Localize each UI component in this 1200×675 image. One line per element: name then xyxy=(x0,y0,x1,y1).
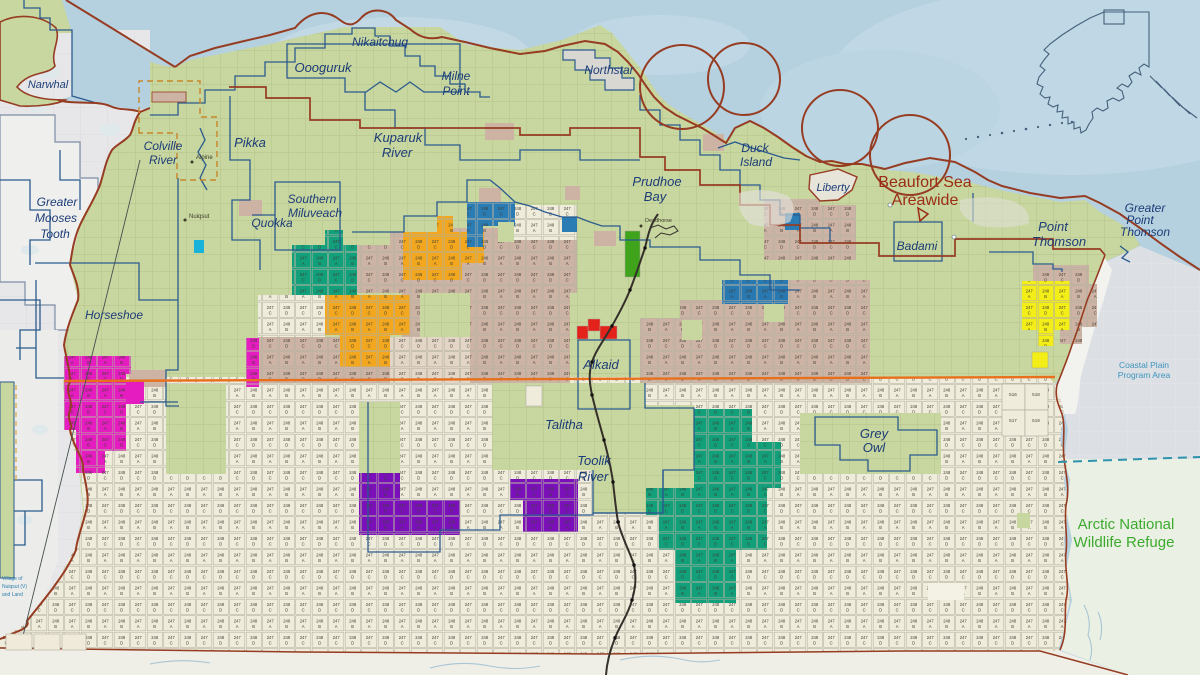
svg-text:River: River xyxy=(578,469,609,484)
svg-text:Alkaid: Alkaid xyxy=(582,357,619,372)
svg-text:519: 519 xyxy=(1032,418,1040,423)
svg-text:Southern: Southern xyxy=(288,192,337,206)
svg-text:Horseshoe: Horseshoe xyxy=(85,308,143,322)
svg-text:Duck: Duck xyxy=(741,141,769,155)
svg-text:Mooses: Mooses xyxy=(35,211,77,225)
svg-text:Beaufort Sea: Beaufort Sea xyxy=(878,174,972,191)
svg-text:Narwhal: Narwhal xyxy=(28,79,69,91)
svg-text:Nuiqsut: Nuiqsut xyxy=(189,214,210,220)
svg-text:Owl: Owl xyxy=(863,440,887,455)
svg-text:Liberty: Liberty xyxy=(816,182,851,194)
svg-text:Coastal Plain: Coastal Plain xyxy=(1119,360,1169,370)
svg-text:Prudhoe: Prudhoe xyxy=(632,174,681,189)
svg-text:and Land: and Land xyxy=(2,592,23,598)
svg-text:Northstar: Northstar xyxy=(584,63,634,77)
svg-text:Village of: Village of xyxy=(2,576,23,582)
svg-text:Alpine: Alpine xyxy=(196,155,213,161)
svg-text:Point: Point xyxy=(1038,219,1069,234)
svg-text:Wildlife Refuge: Wildlife Refuge xyxy=(1074,534,1175,551)
svg-text:Toolik: Toolik xyxy=(577,453,612,468)
svg-text:Arctic National: Arctic National xyxy=(1078,516,1175,533)
svg-text:Program Area: Program Area xyxy=(1118,370,1171,380)
svg-text:Deadhorse: Deadhorse xyxy=(645,218,672,224)
svg-text:River: River xyxy=(382,145,413,160)
svg-text:Nuiqsut (V): Nuiqsut (V) xyxy=(2,584,27,590)
svg-text:Oooguruk: Oooguruk xyxy=(294,60,353,75)
svg-text:Thomson: Thomson xyxy=(1120,225,1170,239)
svg-text:Colville: Colville xyxy=(144,139,183,153)
svg-text:516: 516 xyxy=(1009,392,1017,397)
svg-text:Greater: Greater xyxy=(37,195,79,209)
svg-text:Miluveach: Miluveach xyxy=(288,206,342,220)
svg-text:517: 517 xyxy=(1009,418,1017,423)
svg-text:Bay: Bay xyxy=(644,189,668,204)
svg-text:Nikaitchuq: Nikaitchuq xyxy=(352,35,408,49)
svg-text:Tooth: Tooth xyxy=(40,227,70,241)
svg-text:Island: Island xyxy=(740,155,772,169)
svg-text:River: River xyxy=(149,153,178,167)
svg-text:Grey: Grey xyxy=(860,426,890,441)
svg-text:Thomson: Thomson xyxy=(1032,234,1086,249)
svg-text:Milne: Milne xyxy=(442,69,471,83)
svg-text:Pikka: Pikka xyxy=(234,135,266,150)
svg-text:518: 518 xyxy=(1032,392,1040,397)
svg-text:Areawide: Areawide xyxy=(892,192,959,209)
svg-text:Kuparuk: Kuparuk xyxy=(374,130,424,145)
svg-text:Badami: Badami xyxy=(897,239,938,253)
svg-text:Talitha: Talitha xyxy=(545,417,583,432)
svg-text:Point: Point xyxy=(442,84,470,98)
svg-text:Quokka: Quokka xyxy=(251,216,293,230)
